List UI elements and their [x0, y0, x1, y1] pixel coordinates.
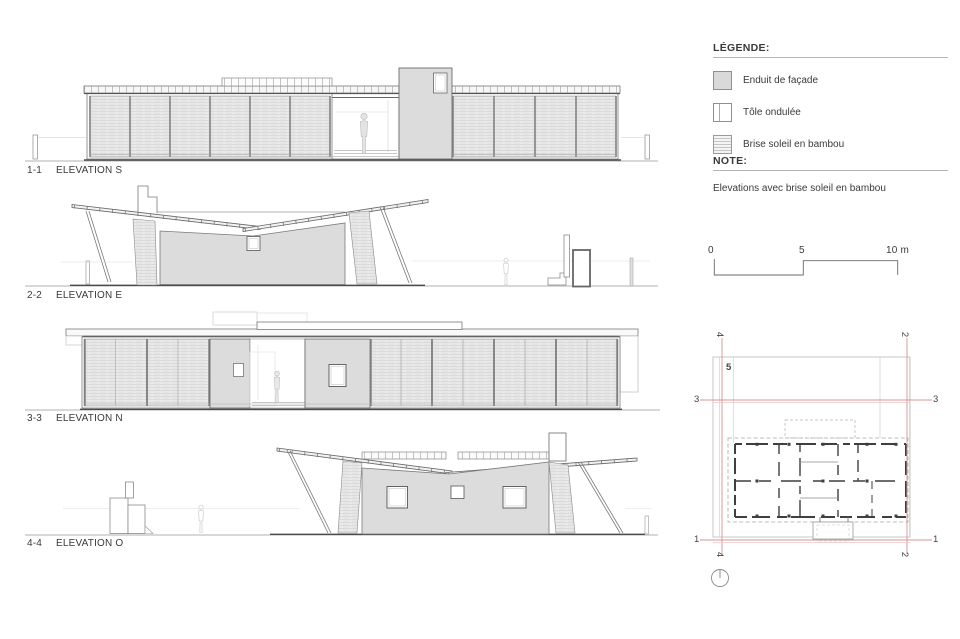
legend-item-stucco: Enduit de façade	[713, 71, 948, 90]
elevation-o-id: 4-4	[27, 538, 56, 549]
stucco-swatch-icon	[713, 71, 732, 90]
scale-tick-10: 10 m	[886, 245, 909, 256]
person-silhouette	[504, 258, 509, 284]
legend-item-bamboo: Brise soleil en bambou	[713, 135, 948, 154]
elevation-s-id: 1-1	[27, 165, 56, 176]
barbecue-structure	[110, 482, 153, 534]
elevation-o-drawing	[25, 433, 658, 535]
note-block: NOTE: Elevations avec brise soleil en ba…	[713, 155, 948, 194]
elevation-e-label: 2-2 ELEVATION E	[27, 290, 122, 301]
scale-bar	[714, 259, 897, 275]
legend: LÉGENDE: Enduit de façade Tôle ondulée B…	[713, 42, 948, 154]
elevation-s-label: 1-1 ELEVATION S	[27, 165, 122, 176]
elevation-s-drawing	[25, 68, 658, 161]
note-title: NOTE:	[713, 155, 948, 171]
section-mark-2-top: 2	[899, 332, 910, 337]
stucco-tower	[399, 68, 452, 159]
elevation-s-name: ELEVATION S	[56, 165, 122, 176]
legend-item-label: Tôle ondulée	[743, 107, 801, 118]
bamboo-screen	[349, 211, 377, 284]
key-plan	[700, 338, 932, 587]
section-mark-3-right: 3	[933, 394, 938, 405]
scale-tick-5: 5	[799, 245, 805, 256]
stucco-wall	[160, 223, 345, 285]
elevation-o-name: ELEVATION O	[56, 538, 123, 549]
legend-title: LÉGENDE:	[713, 42, 948, 58]
bamboo-screen	[549, 462, 575, 533]
butterfly-roof	[277, 448, 637, 476]
elevation-n-id: 3-3	[27, 413, 56, 424]
elevation-n-drawing	[25, 312, 660, 410]
elevation-o-label: 4-4 ELEVATION O	[27, 538, 123, 549]
bamboo-screen	[338, 461, 362, 533]
legend-item-corrugated: Tôle ondulée	[713, 103, 948, 122]
bamboo-screen	[133, 219, 157, 285]
elevation-e-name: ELEVATION E	[56, 290, 122, 301]
section-mark-2-bottom: 2	[899, 552, 910, 557]
section-mark-1-left: 1	[694, 534, 699, 545]
elevation-n-label: 3-3 ELEVATION N	[27, 413, 123, 424]
bamboo-swatch-icon	[713, 135, 732, 154]
corrugated-sheet-swatch-icon	[713, 103, 732, 122]
legend-item-label: Enduit de façade	[743, 75, 818, 86]
plan-mark-5: 5	[726, 362, 731, 373]
legend-item-label: Brise soleil en bambou	[743, 139, 844, 150]
section-mark-3-left: 3	[694, 394, 699, 405]
elevation-e-id: 2-2	[27, 290, 56, 301]
elevation-e-drawing	[25, 186, 658, 287]
section-mark-4-bottom: 4	[714, 552, 725, 557]
butterfly-roof	[72, 200, 428, 232]
stucco-panel	[210, 339, 250, 408]
scale-tick-0: 0	[708, 245, 714, 256]
section-mark-1-right: 1	[933, 534, 938, 545]
section-mark-4-top: 4	[714, 332, 725, 337]
roof-slab	[84, 78, 620, 94]
drawing-sheet: 1-1 ELEVATION S 2-2 ELEVATION E 3-3 ELEV…	[0, 0, 960, 639]
note-text: Elevations avec brise soleil en bambou	[713, 183, 948, 194]
elevation-n-name: ELEVATION N	[56, 413, 123, 424]
north-arrow-icon	[712, 570, 729, 587]
person-silhouette	[199, 505, 204, 532]
